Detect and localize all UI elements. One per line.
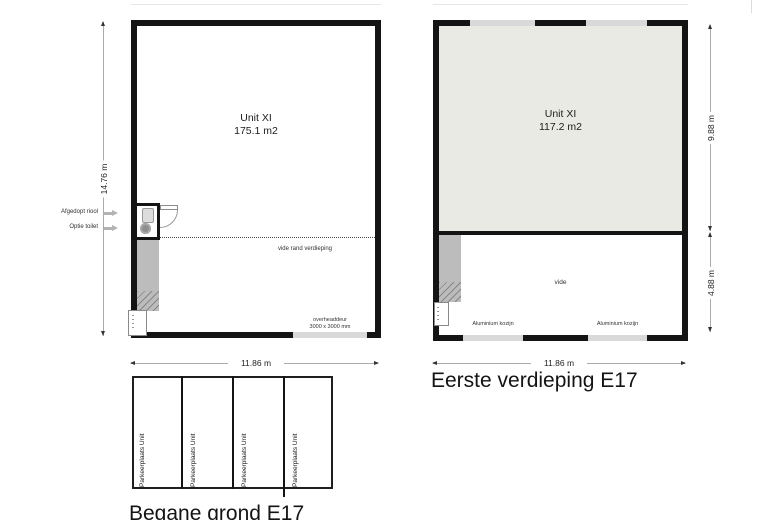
window-opening — [463, 335, 523, 341]
clipped-dimension-line-right — [433, 4, 688, 5]
height-dimension-label: 14.76 m — [99, 161, 109, 198]
width-dimension-label: 11.86 m — [531, 358, 587, 368]
parking-divider — [283, 376, 285, 497]
unit-area: 175.1 m2 — [137, 125, 375, 138]
window-label-left: Aluminium kozijn — [460, 321, 526, 328]
stairs — [137, 240, 159, 311]
dim-tick — [130, 361, 135, 365]
first-floor-unit-label: Unit XI 117.2 m2 — [439, 108, 682, 134]
dim-tick — [101, 331, 105, 336]
dim-tick — [681, 361, 686, 365]
parking-stall-label: Parkeerplaats Unit — [189, 427, 199, 487]
arrow-right-icon — [104, 225, 119, 232]
dim-tick — [432, 361, 437, 365]
stairs — [439, 235, 461, 302]
parking-divider — [181, 376, 183, 489]
meter-cupboard-marks — [437, 307, 439, 320]
dim-tick — [708, 226, 712, 231]
first-floor-title: Eerste verdieping E17 — [431, 369, 638, 393]
meter-cupboard-marks — [132, 315, 134, 328]
width-dimension-label: 11.86 m — [228, 358, 284, 368]
toilet-room — [134, 203, 160, 240]
ground-floor-unit-label: Unit XI 175.1 m2 — [137, 112, 375, 138]
meter-cupboard — [128, 310, 147, 336]
lower-height-dimension-label: 4.88 m — [706, 267, 716, 299]
void-dashed-line — [160, 237, 375, 238]
dim-tick — [708, 232, 712, 237]
upper-height-dimension-label: 9.88 m — [706, 112, 716, 144]
clipped-dimension-line-left — [131, 4, 381, 5]
toilet-icon — [140, 223, 151, 234]
overhead-door-size: 3000 x 3000 mm — [288, 324, 372, 331]
parking-stall-label: Parkeerplaats Unit — [291, 427, 301, 487]
sewer-annotation: Afgedopt riool — [52, 209, 98, 216]
window-opening — [588, 335, 647, 341]
dim-tick — [708, 24, 712, 29]
clipped-line-remnant — [751, 0, 752, 13]
toilet-option-annotation: Optie toilet — [52, 224, 98, 231]
sink-icon — [142, 208, 154, 223]
floor-plan-sheet: Unit XI 175.1 m2 vide rand verdieping ov… — [0, 0, 780, 520]
parking-divider — [232, 376, 234, 489]
overhead-door-label: overheaddeur 3000 x 3000 mm — [288, 317, 372, 330]
dim-tick — [374, 361, 379, 365]
ground-floor-walls — [131, 20, 381, 338]
stair-treads — [137, 291, 159, 311]
floor-edge-wall — [439, 231, 682, 235]
window-label-right: Aluminium kozijn — [585, 321, 650, 328]
overhead-door-opening — [293, 332, 367, 338]
dim-tick — [708, 327, 712, 332]
unit-area: 117.2 m2 — [439, 121, 682, 134]
void-label: vide rand verdieping — [250, 246, 360, 253]
unit-name: Unit XI — [137, 112, 375, 125]
parking-stall-label: Parkeerplaats Unit — [240, 427, 250, 487]
dim-tick — [101, 21, 105, 26]
meter-cupboard — [434, 302, 449, 326]
void-label: vide — [439, 279, 682, 287]
parking-stall-label: Parkeerplaats Unit — [138, 427, 148, 487]
arrow-right-icon — [104, 210, 119, 217]
ground-floor-title: Begane grond E17 — [129, 502, 304, 520]
unit-name: Unit XI — [439, 108, 682, 121]
